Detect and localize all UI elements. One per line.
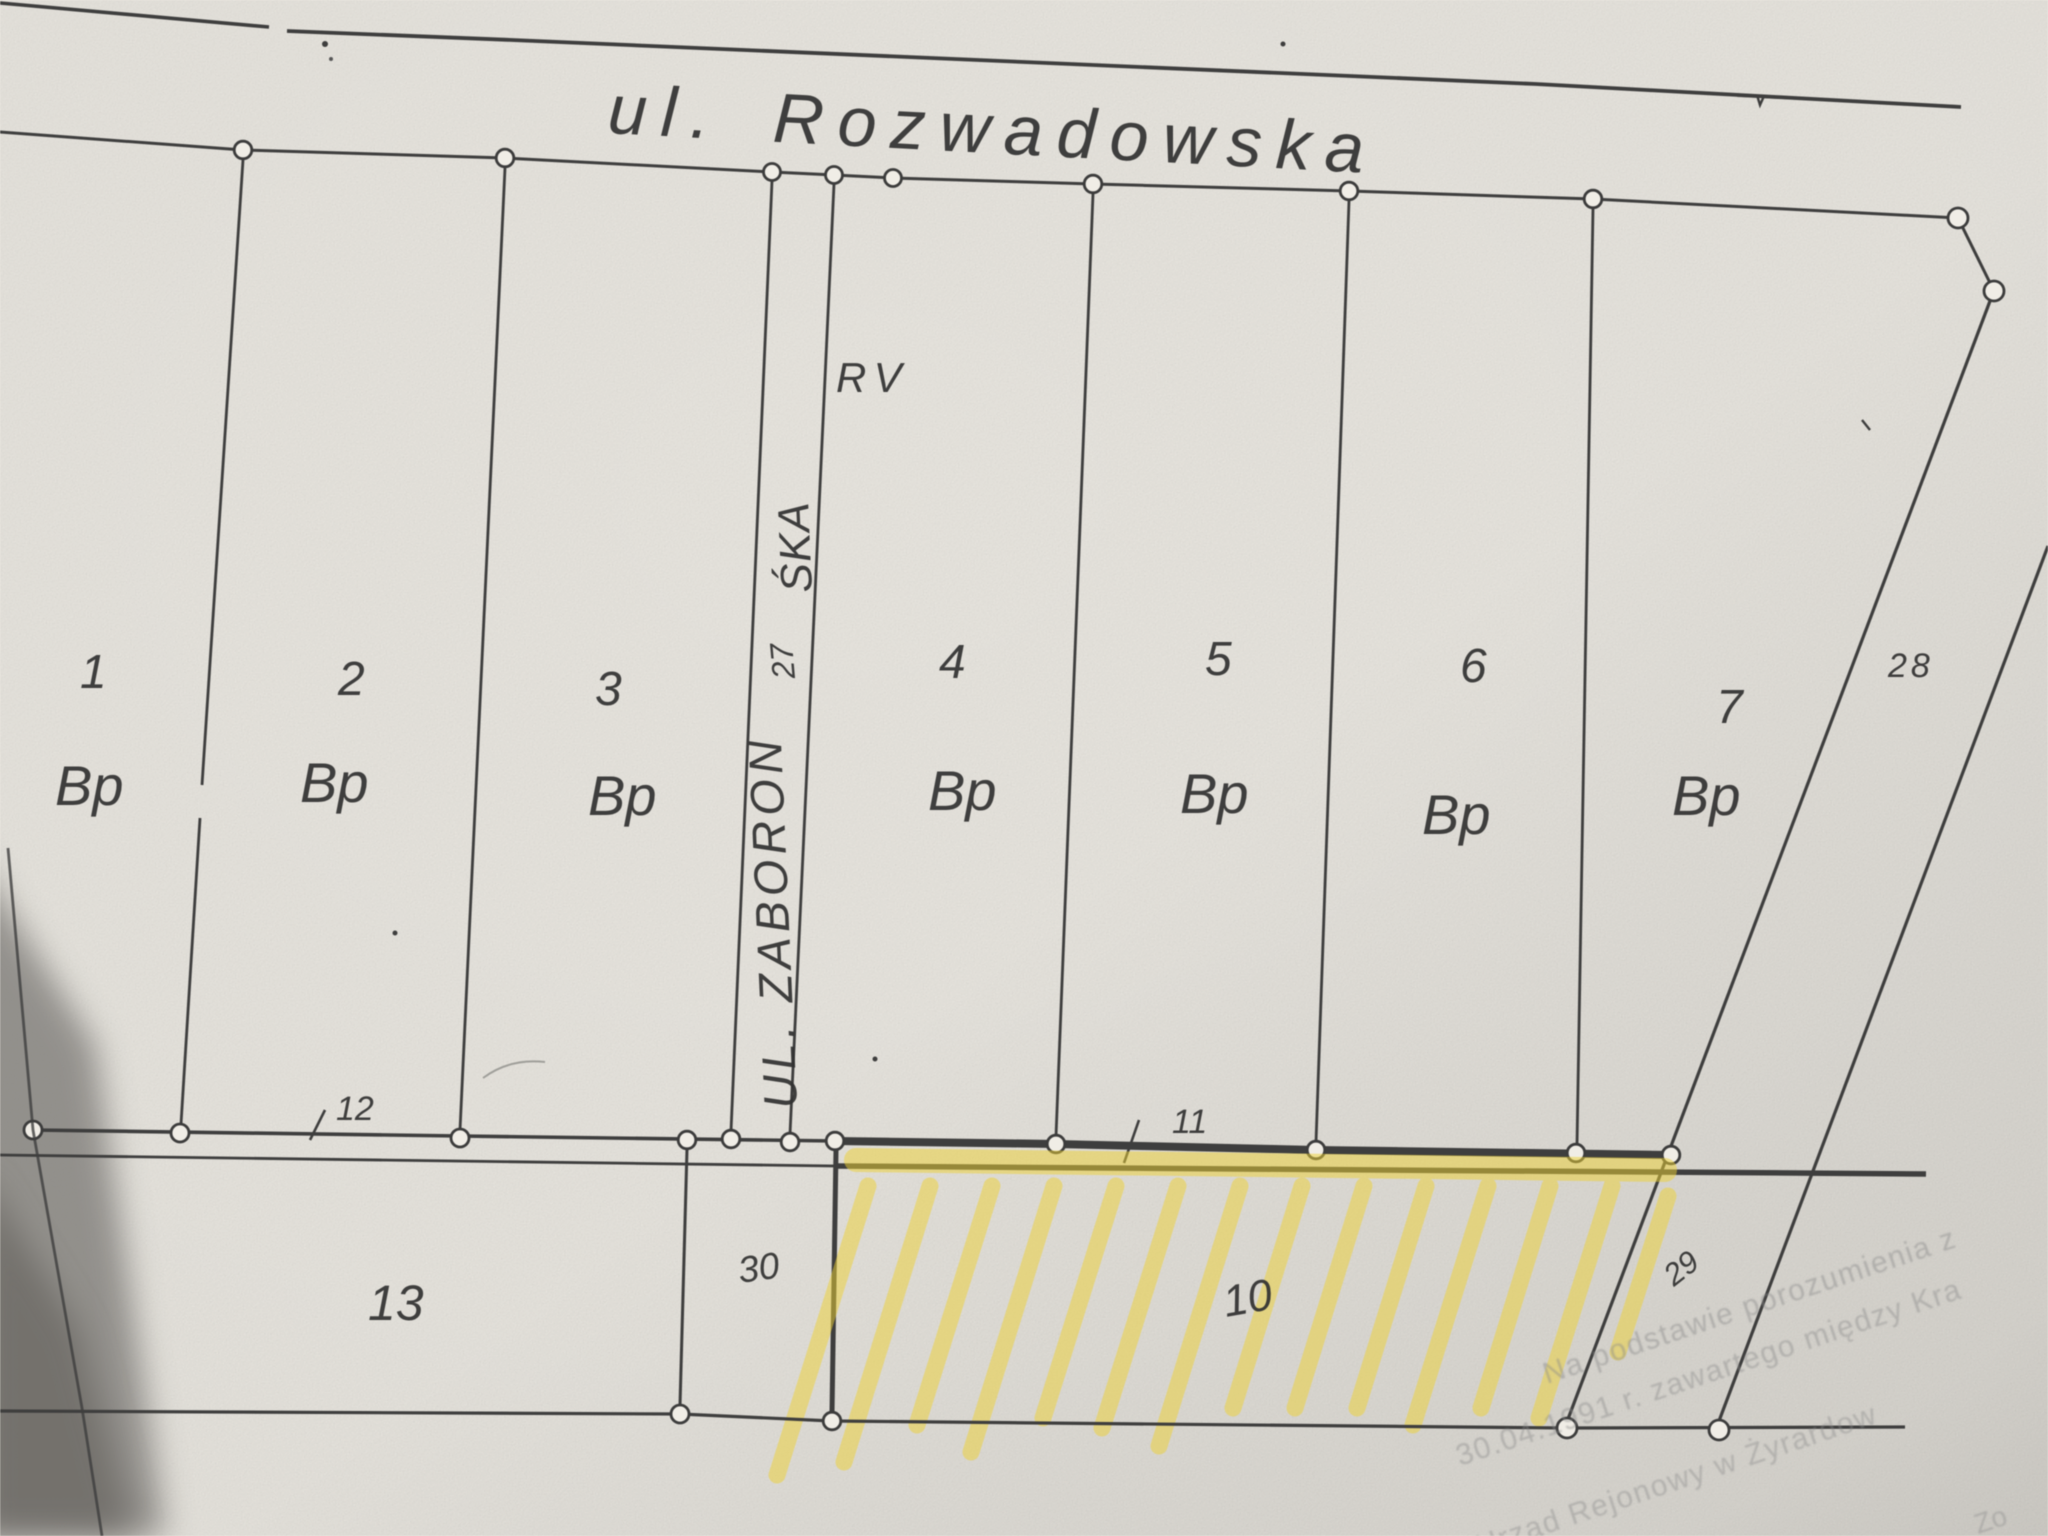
svg-text:Bp: Bp: [588, 764, 657, 827]
svg-text:1: 1: [80, 646, 107, 699]
svg-text:Bp: Bp: [1672, 764, 1741, 827]
svg-text:6: 6: [1460, 640, 1487, 693]
svg-text:Bp: Bp: [300, 751, 369, 814]
svg-text:27: 27: [763, 641, 802, 682]
svg-text:28: 28: [1887, 647, 1934, 685]
svg-text:12: 12: [336, 1090, 374, 1128]
svg-text:7: 7: [1716, 681, 1745, 734]
svg-text:ŚKA: ŚKA: [768, 501, 822, 594]
svg-text:13: 13: [368, 1275, 424, 1331]
svg-text:5: 5: [1205, 633, 1232, 686]
svg-text:4: 4: [939, 636, 966, 689]
svg-text:RV: RV: [836, 354, 910, 401]
svg-text:10: 10: [1219, 1270, 1276, 1327]
svg-text:30: 30: [735, 1245, 782, 1291]
svg-text:Bp: Bp: [1180, 762, 1249, 825]
svg-text:11: 11: [1172, 1103, 1207, 1141]
svg-text:2: 2: [337, 653, 365, 706]
svg-text:3: 3: [595, 663, 622, 716]
svg-text:Bp: Bp: [55, 754, 124, 817]
svg-text:Bp: Bp: [928, 759, 997, 822]
svg-text:Bp: Bp: [1422, 783, 1491, 846]
